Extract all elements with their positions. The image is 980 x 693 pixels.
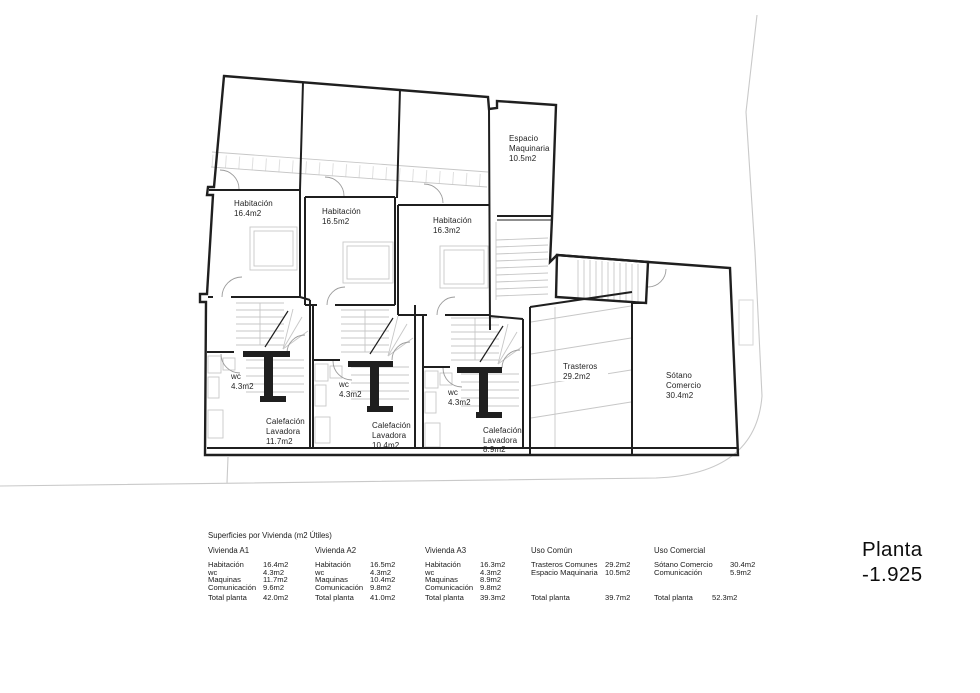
svg-text:16.3m2: 16.3m2 [433,226,461,235]
column-header: Uso Común [531,547,651,555]
plan-sheet: Espacio Maquinaria 10.5m2 Habitación 16.… [0,0,980,693]
door-arc [220,170,239,189]
column-header: Vivienda A1 [208,547,328,555]
room-label-habitacion-2: Habitación [322,207,361,216]
svg-text:Maquinaria: Maquinaria [509,144,550,153]
column-rows: Habitación16.5m2 wc4.3m2 Maquinas10.4m2 … [315,561,435,591]
door-arc [325,177,344,196]
i-column-unit-2 [348,361,393,412]
room-label-espacio-maquinaria: Espacio [509,134,539,143]
column-total: Total planta39.7m2 [531,594,630,602]
column-header: Vivienda A3 [425,547,545,555]
room-label-trasteros: Trasteros [563,362,597,371]
column-rows: Sótano Comercio30.4m2 Comunicación5.9m2 [654,561,774,576]
room-label-calefaccion-1: Calefación [266,417,305,426]
column-header: Vivienda A2 [315,547,435,555]
svg-text:Lavadora: Lavadora [266,427,301,436]
svg-text:11.7m2: 11.7m2 [266,437,293,446]
exterior-niche [739,300,753,345]
i-column-unit-3 [457,367,502,418]
column-header: Uso Comercial [654,547,774,555]
vault-tick-band [212,161,488,181]
plot-boundary [0,15,762,486]
inner-walls [207,82,738,455]
svg-text:4.3m2: 4.3m2 [231,382,254,391]
room-label-habitacion-3: Habitación [433,216,472,225]
table-row: Comunicación9.6m2 [208,584,328,592]
svg-text:4.3m2: 4.3m2 [448,398,471,407]
svg-text:Lavadora: Lavadora [483,436,518,445]
svg-text:29.2m2: 29.2m2 [563,372,591,381]
sheet-title: Planta -1.925 [862,538,923,587]
svg-text:16.4m2: 16.4m2 [234,209,262,218]
room-label-calefaccion-3: Calefación [483,426,522,435]
i-column-unit-1 [243,351,290,402]
svg-text:16.5m2: 16.5m2 [322,217,350,226]
door-arc [222,277,242,297]
table-column-vivienda-a2: Vivienda A2 Habitación16.5m2 wc4.3m2 Maq… [315,547,435,611]
column-rows: Habitación16.3m2 wc4.3m2 Maquinas8.9m2 C… [425,561,545,591]
columns-layer [243,351,502,418]
extension-line [227,457,228,483]
room-label-wc-2: wc [338,380,349,389]
table-row: Comunicación9.8m2 [315,584,435,592]
svg-text:Lavadora: Lavadora [372,431,407,440]
room-label-calefaccion-2: Calefación [372,421,411,430]
table-row: Espacio Maquinaria10.5m2 [531,569,651,577]
svg-text:4.3m2: 4.3m2 [339,390,362,399]
room-label-sotano: Sótano [666,371,692,380]
column-rows: Habitación16.4m2 wc4.3m2 Maquinas11.7m2 … [208,561,328,591]
svg-text:Comercio: Comercio [666,381,701,390]
svg-text:8.9m2: 8.9m2 [483,445,506,454]
column-total: Total planta52.3m2 [654,594,737,602]
areas-table-title: Superficies por Vivienda (m2 Útiles) [208,532,332,540]
room-label-wc-1: wc [230,372,241,381]
table-row: Comunicación5.9m2 [654,569,774,577]
table-row: Comunicación9.8m2 [425,584,545,592]
svg-text:30.4m2: 30.4m2 [666,391,694,400]
door-arc [424,184,443,203]
room-label-wc-3: wc [447,388,458,397]
sheet-title-level: -1.925 [862,563,923,588]
sheet-title-name: Planta [862,538,923,563]
table-column-uso-comun: Uso Común Trasteros Comunes29.2m2 Espaci… [531,547,651,611]
column-total: Total planta39.3m2 [425,594,505,602]
column-total: Total planta41.0m2 [315,594,395,602]
column-total: Total planta42.0m2 [208,594,288,602]
door-arc [327,287,345,305]
room-label-habitacion-1: Habitación [234,199,273,208]
svg-text:10.5m2: 10.5m2 [509,154,537,163]
table-column-vivienda-a1: Vivienda A1 Habitación16.4m2 wc4.3m2 Maq… [208,547,328,611]
communication-stair-flight [496,222,548,300]
door-arc [437,297,455,315]
svg-text:10.4m2: 10.4m2 [372,441,400,450]
plot-boundary-line [0,15,762,486]
table-column-vivienda-a3: Vivienda A3 Habitación16.3m2 wc4.3m2 Maq… [425,547,545,611]
table-column-uso-comercial: Uso Comercial Sótano Comercio30.4m2 Comu… [654,547,774,611]
door-arc [648,269,666,287]
column-rows: Trasteros Comunes29.2m2 Espacio Maquinar… [531,561,651,576]
